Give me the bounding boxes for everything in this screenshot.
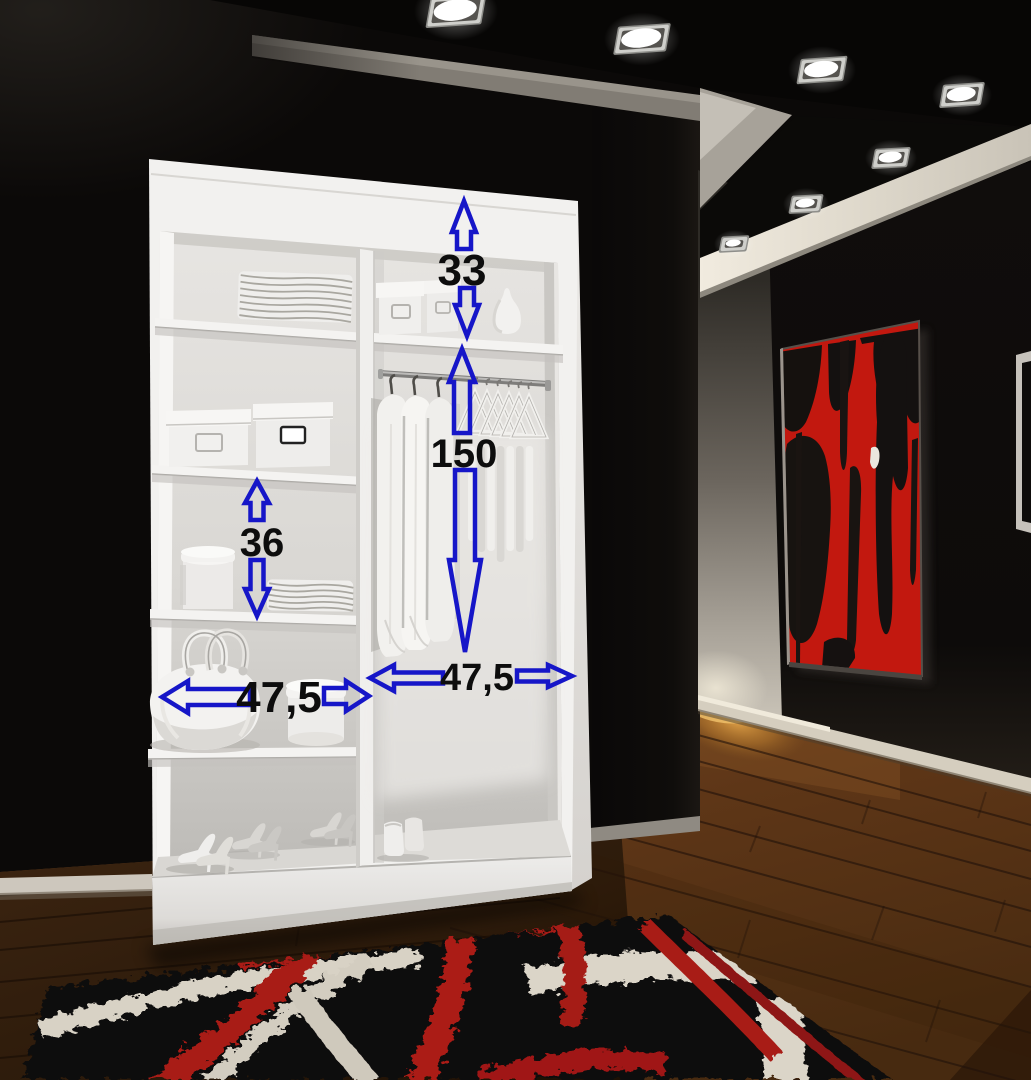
svg-text:47,5: 47,5 bbox=[440, 657, 514, 699]
svg-text:33: 33 bbox=[438, 246, 487, 295]
svg-text:36: 36 bbox=[240, 521, 285, 565]
svg-text:47,5: 47,5 bbox=[236, 673, 322, 722]
svg-text:150: 150 bbox=[431, 432, 498, 476]
